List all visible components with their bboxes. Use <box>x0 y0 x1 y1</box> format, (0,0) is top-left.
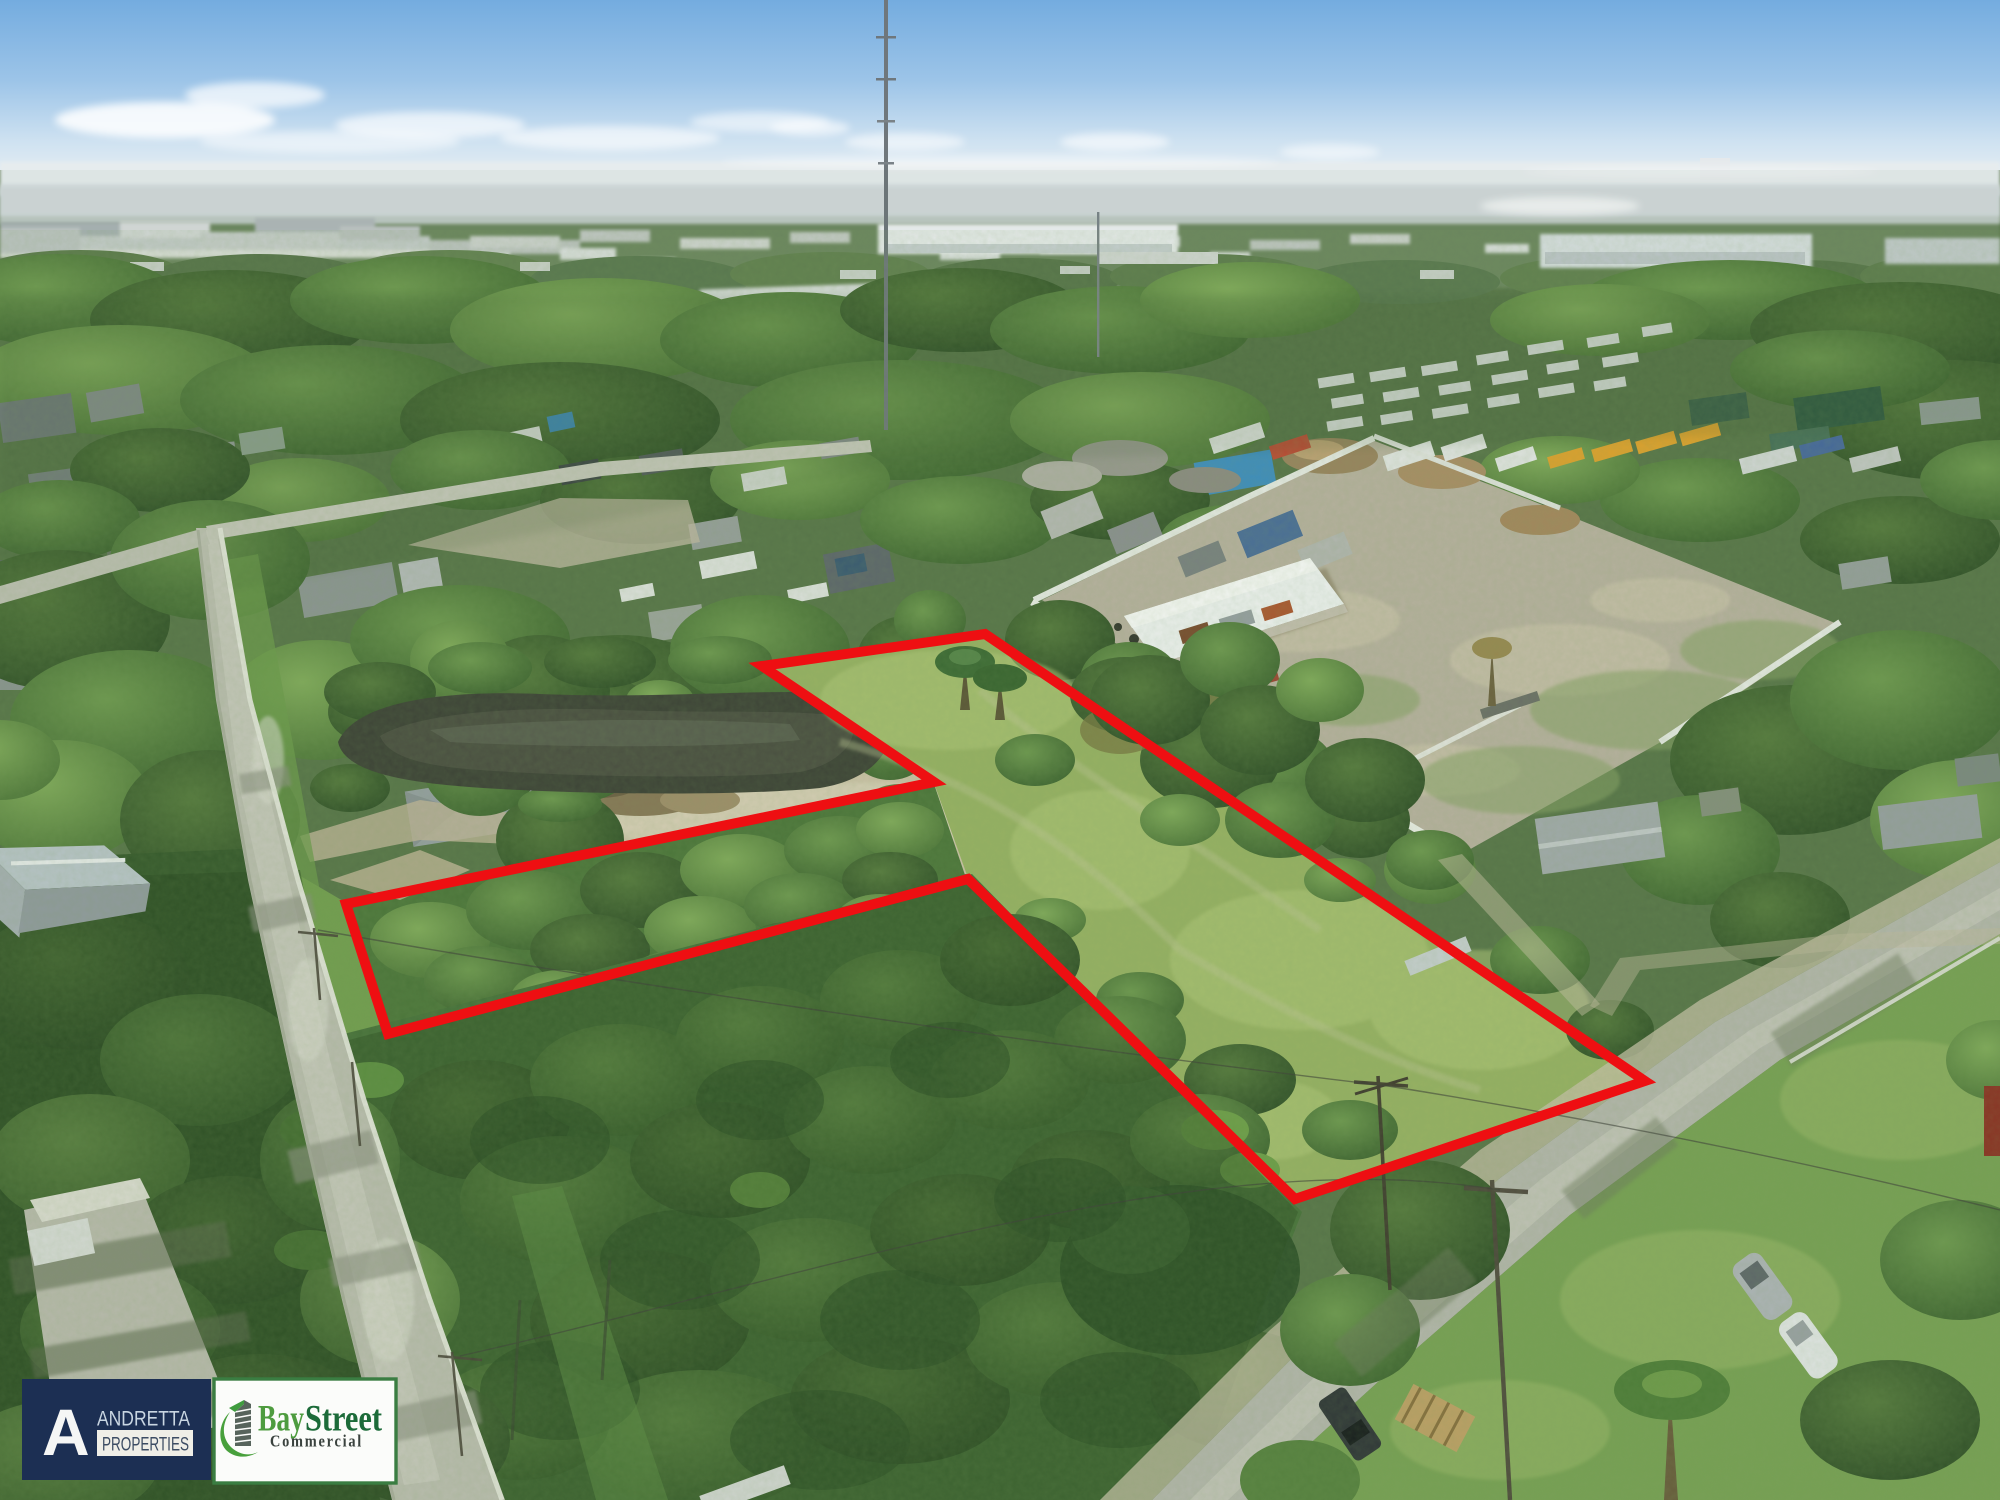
svg-text:Commercial: Commercial <box>270 1432 363 1451</box>
svg-text:PROPERTIES: PROPERTIES <box>102 1434 189 1456</box>
svg-text:ANDRETTA: ANDRETTA <box>97 1407 191 1431</box>
svg-text:A: A <box>42 1395 90 1469</box>
